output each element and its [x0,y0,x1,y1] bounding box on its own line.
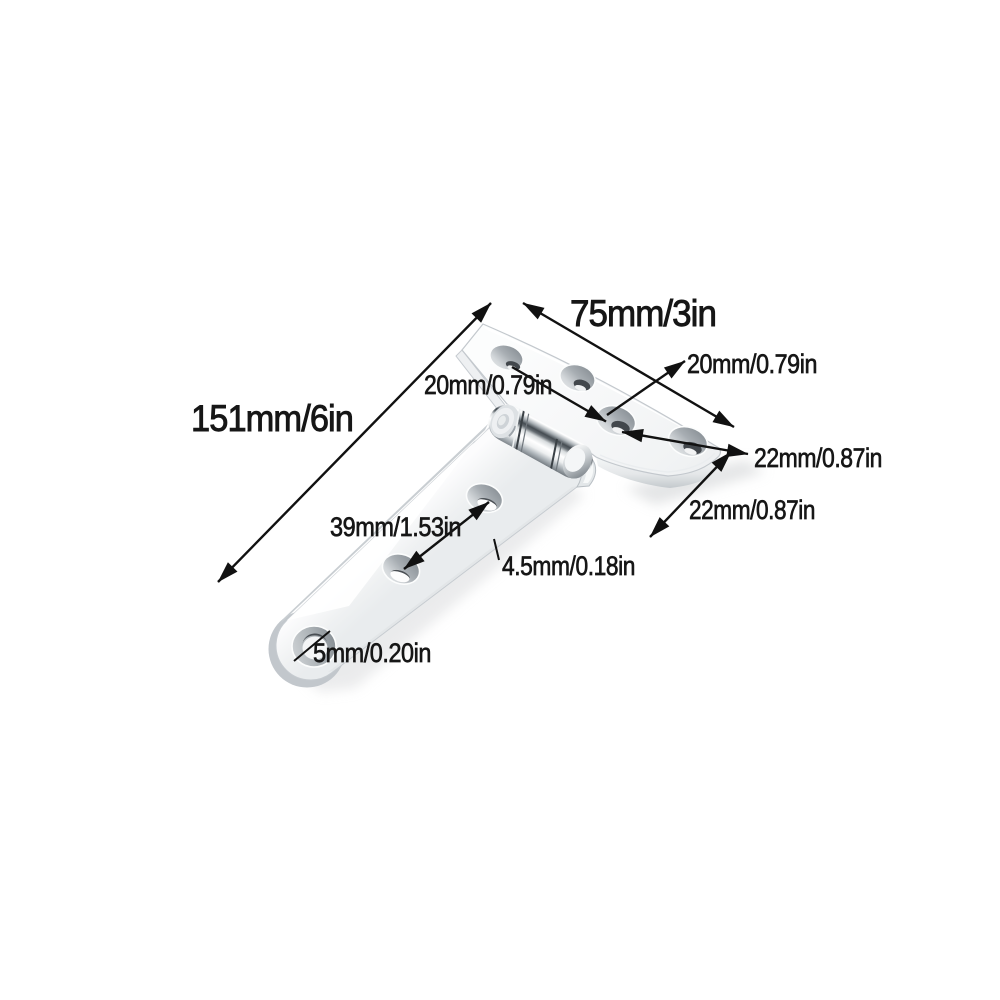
svg-text:22mm/0.87in: 22mm/0.87in [754,443,882,473]
svg-text:75mm/3in: 75mm/3in [570,293,716,334]
svg-text:20mm/0.79in: 20mm/0.79in [424,370,552,400]
svg-text:39mm/1.53in: 39mm/1.53in [330,512,461,542]
svg-text:20mm/0.79in: 20mm/0.79in [687,349,817,379]
svg-text:5mm/0.20in: 5mm/0.20in [313,638,431,668]
svg-text:22mm/0.87in: 22mm/0.87in [689,495,815,525]
svg-text:4.5mm/0.18in: 4.5mm/0.18in [502,551,635,581]
svg-text:151mm/6in: 151mm/6in [191,398,353,439]
